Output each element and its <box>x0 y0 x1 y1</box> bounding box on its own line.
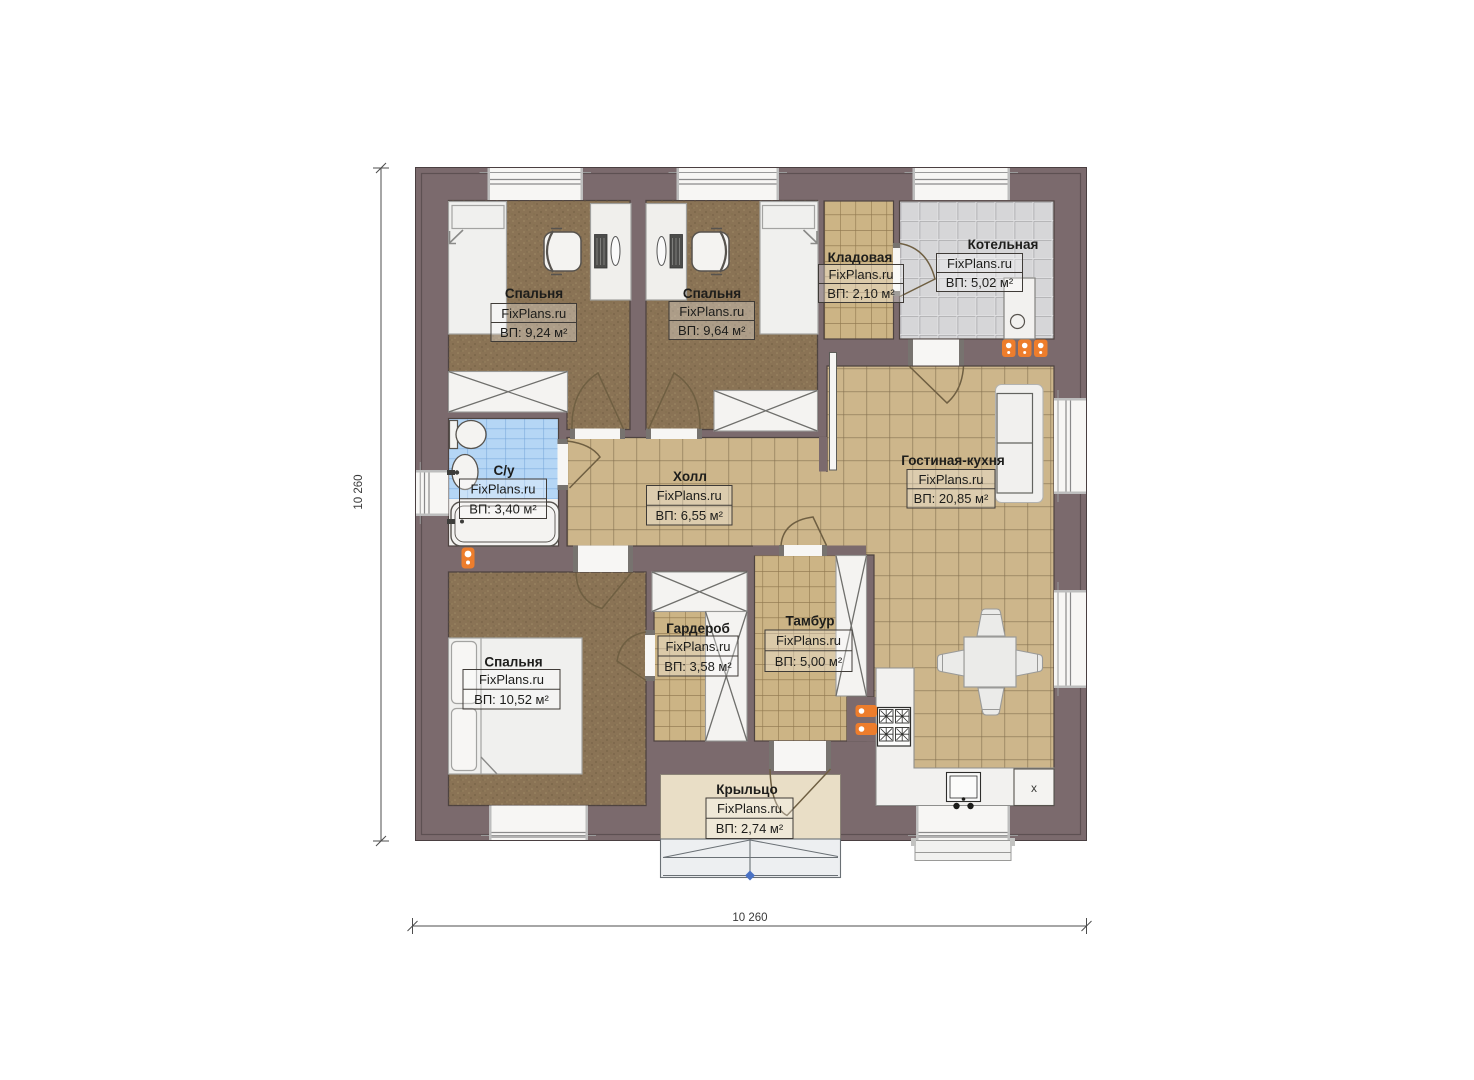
svg-text:ВП: 5,02 м²: ВП: 5,02 м² <box>946 275 1014 290</box>
svg-text:ВП: 3,40 м²: ВП: 3,40 м² <box>469 501 537 516</box>
svg-text:ВП: 2,74 м²: ВП: 2,74 м² <box>716 821 784 836</box>
svg-text:Спальня: Спальня <box>505 286 563 301</box>
svg-text:FixPlans.ru: FixPlans.ru <box>657 488 722 503</box>
svg-text:Крыльцо: Крыльцо <box>716 782 777 797</box>
svg-text:10 260: 10 260 <box>732 912 767 924</box>
svg-text:ВП: 9,64 м²: ВП: 9,64 м² <box>678 323 746 338</box>
svg-text:Кладовая: Кладовая <box>828 250 893 265</box>
svg-text:Спальня: Спальня <box>683 286 741 301</box>
svg-text:Гостиная-кухня: Гостиная-кухня <box>901 453 1004 468</box>
svg-text:ВП: 20,85 м²: ВП: 20,85 м² <box>914 491 989 506</box>
svg-text:FixPlans.ru: FixPlans.ru <box>501 306 566 321</box>
svg-text:x: x <box>1031 781 1037 795</box>
svg-text:FixPlans.ru: FixPlans.ru <box>947 256 1012 271</box>
svg-text:FixPlans.ru: FixPlans.ru <box>470 482 535 497</box>
svg-text:FixPlans.ru: FixPlans.ru <box>679 304 744 319</box>
svg-text:ВП: 3,58 м²: ВП: 3,58 м² <box>664 659 732 674</box>
svg-text:ВП: 10,52 м²: ВП: 10,52 м² <box>474 692 549 707</box>
svg-text:ВП: 2,10 м²: ВП: 2,10 м² <box>827 286 895 301</box>
svg-text:10 260: 10 260 <box>353 474 365 509</box>
svg-text:ВП: 5,00 м²: ВП: 5,00 м² <box>775 654 843 669</box>
svg-text:FixPlans.ru: FixPlans.ru <box>918 472 983 487</box>
svg-text:Котельная: Котельная <box>968 237 1039 252</box>
svg-text:FixPlans.ru: FixPlans.ru <box>717 801 782 816</box>
svg-text:С/у: С/у <box>493 463 515 478</box>
svg-text:FixPlans.ru: FixPlans.ru <box>665 639 730 654</box>
svg-text:Гардероб: Гардероб <box>666 621 730 636</box>
svg-text:FixPlans.ru: FixPlans.ru <box>479 672 544 687</box>
svg-text:ВП: 6,55 м²: ВП: 6,55 м² <box>656 508 724 523</box>
svg-text:ВП: 9,24 м²: ВП: 9,24 м² <box>500 325 568 340</box>
svg-text:Холл: Холл <box>673 469 707 484</box>
svg-text:Тамбур: Тамбур <box>786 613 835 628</box>
svg-text:FixPlans.ru: FixPlans.ru <box>828 267 893 282</box>
svg-text:FixPlans.ru: FixPlans.ru <box>776 633 841 648</box>
svg-text:Спальня: Спальня <box>484 654 542 669</box>
